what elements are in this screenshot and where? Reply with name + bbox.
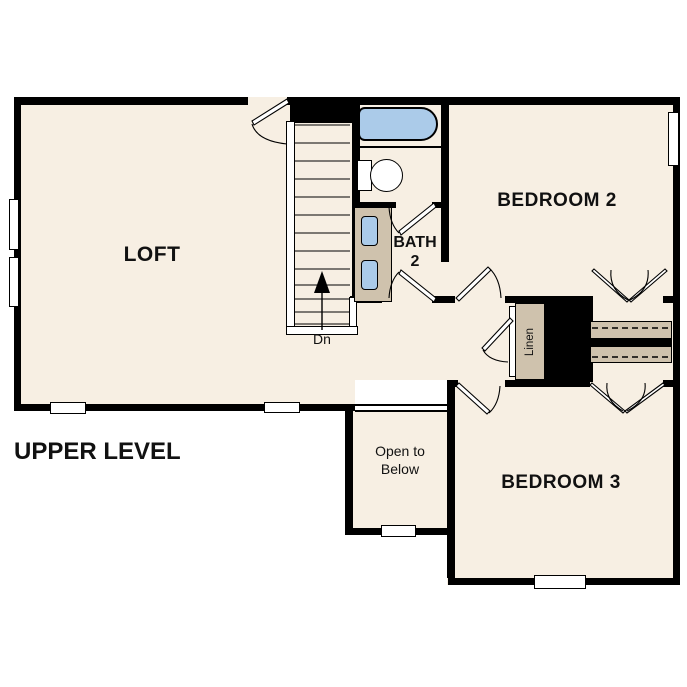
stair-direction-arrow — [314, 271, 330, 330]
plan-symbols — [0, 0, 687, 687]
bedroom2-room-label: BEDROOM 2 — [477, 190, 637, 212]
bath-label-line1: BATH — [383, 233, 447, 252]
bedroom3-closet-doors-icon — [590, 383, 665, 413]
loft-door-icon — [252, 99, 289, 144]
bedroom2-door-icon — [456, 267, 501, 301]
bedroom3-door-icon — [456, 383, 500, 414]
bath-label-line2: 2 — [383, 252, 447, 271]
stairs-down-label: Dn — [306, 331, 338, 347]
floor-plan-canvas: Linen — [0, 0, 687, 687]
loft-room-label: LOFT — [92, 243, 212, 267]
bath-room-label: BATH 2 — [383, 233, 447, 271]
bath-inner-door-icon — [389, 203, 436, 235]
linen-door-icon — [482, 318, 513, 362]
plan-title: UPPER LEVEL — [14, 438, 314, 466]
bedroom2-closet-doors-icon — [592, 269, 667, 302]
bedroom3-room-label: BEDROOM 3 — [481, 472, 641, 494]
open-to-below-label: Open to Below — [368, 443, 432, 479]
bath-entry-door-icon — [389, 270, 436, 302]
closet-rod-dashes — [592, 328, 670, 357]
